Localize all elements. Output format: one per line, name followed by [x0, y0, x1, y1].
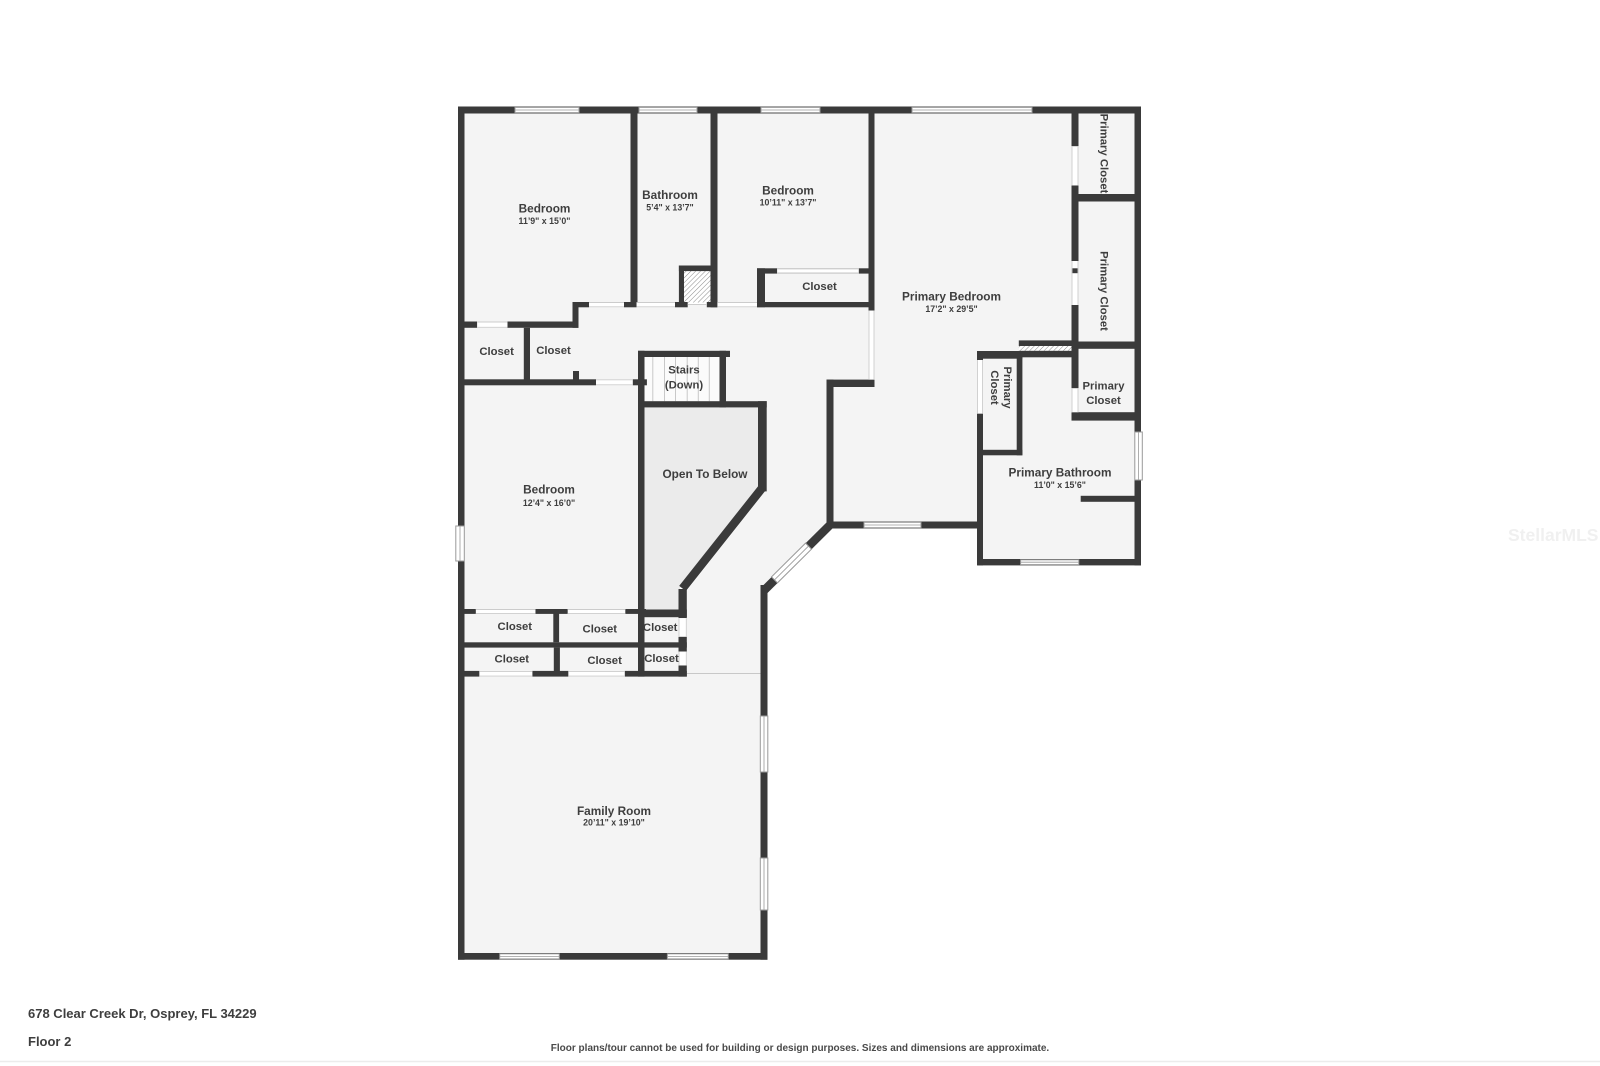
svg-text:Closet: Closet	[643, 622, 678, 634]
svg-text:Bedroom: Bedroom	[519, 202, 571, 216]
svg-text:Primary Closet: Primary Closet	[1098, 251, 1110, 331]
svg-text:5’4" x 13’7": 5’4" x 13’7"	[646, 202, 693, 212]
svg-text:678 Clear Creek Dr, Osprey, FL: 678 Clear Creek Dr, Osprey, FL 34229	[28, 1006, 257, 1021]
svg-text:Bedroom: Bedroom	[523, 483, 575, 497]
svg-text:Primary: Primary	[1082, 381, 1125, 393]
svg-text:Open To Below: Open To Below	[663, 467, 749, 481]
svg-text:11’0" x 15’6": 11’0" x 15’6"	[1034, 480, 1086, 490]
svg-text:17’2" x 29’5": 17’2" x 29’5"	[925, 304, 977, 314]
svg-text:Primary Closet: Primary Closet	[1098, 114, 1110, 194]
svg-text:Closet: Closet	[498, 621, 533, 633]
svg-text:Closet: Closet	[583, 624, 618, 636]
svg-text:Closet: Closet	[479, 346, 514, 358]
svg-text:Floor 2: Floor 2	[28, 1034, 71, 1049]
svg-text:Closet: Closet	[495, 654, 530, 666]
svg-text:Family Room: Family Room	[577, 804, 651, 818]
svg-text:12’4" x 16’0": 12’4" x 16’0"	[523, 498, 575, 508]
svg-text:10’11" x 13’7": 10’11" x 13’7"	[760, 198, 817, 208]
svg-text:11’9" x 15’0": 11’9" x 15’0"	[519, 216, 571, 226]
svg-text:Bathroom: Bathroom	[642, 188, 698, 202]
svg-text:Bedroom: Bedroom	[762, 184, 814, 198]
svg-text:Closet: Closet	[536, 345, 571, 357]
svg-text:Floor plans/tour cannot be use: Floor plans/tour cannot be used for buil…	[551, 1043, 1050, 1054]
svg-text:Closet: Closet	[1086, 395, 1121, 407]
svg-text:Closet: Closet	[587, 655, 622, 667]
svg-text:Closet: Closet	[644, 653, 679, 665]
svg-text:Stairs: Stairs	[668, 365, 699, 377]
svg-text:StellarMLS: StellarMLS	[1508, 525, 1598, 545]
svg-text:Primary Bathroom: Primary Bathroom	[1009, 466, 1112, 480]
svg-text:Closet: Closet	[802, 281, 837, 293]
svg-text:(Down): (Down)	[665, 380, 704, 392]
svg-text:Primary Bedroom: Primary Bedroom	[902, 290, 1001, 304]
svg-text:PrimaryCloset: PrimaryCloset	[988, 366, 1013, 409]
svg-text:20’11" x 19’10": 20’11" x 19’10"	[583, 818, 645, 828]
